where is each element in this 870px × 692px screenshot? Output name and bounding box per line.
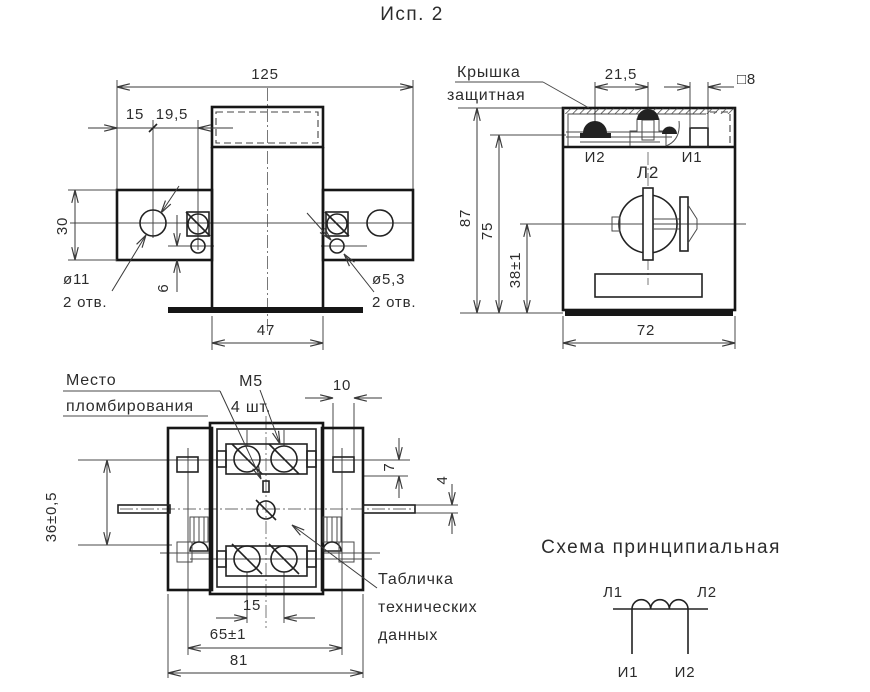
dim-38: 38±1 [507, 252, 524, 288]
dim-75: 75 [479, 222, 496, 240]
thread-label-line2: 4 шт. [231, 399, 271, 416]
dim-10: 10 [333, 377, 351, 394]
schematic: Схема принципиальная Л1 Л2 И1 И2 [541, 537, 781, 681]
dim-30: 30 [54, 217, 71, 235]
seal-label-line1: Место [66, 372, 116, 389]
terminal-screw-icon [269, 444, 299, 474]
square-terminal-opening [690, 128, 708, 147]
thread-label-line1: М5 [239, 373, 263, 390]
terminal-label-i1: И1 [682, 149, 703, 166]
plate-label-line3: данных [378, 627, 438, 644]
side-view: Крышка защитная 21,5 □8 87 75 38±1 72 И2… [447, 64, 756, 349]
terminal-label-l2: Л2 [637, 163, 659, 182]
clamp-bar [643, 188, 653, 260]
front-base-plate [168, 307, 363, 313]
bottom-central-block [210, 423, 323, 594]
dim-dia11: ø11 [63, 271, 90, 288]
side-label-plate [595, 274, 702, 297]
terminal-label-i2: И2 [585, 149, 606, 166]
plate-label-line2: технических [378, 599, 477, 616]
terminal-screw-head-icon [583, 121, 607, 133]
cover-label-line1: Крышка [457, 64, 521, 81]
dim-125: 125 [251, 66, 278, 83]
dim-65: 65±1 [210, 626, 246, 643]
dim-21-5: 21,5 [605, 66, 637, 83]
dim-87: 87 [457, 209, 474, 227]
seal-label-line2: пломбирования [66, 398, 194, 415]
dim-4: 4 [434, 475, 451, 484]
schematic-label-l2: Л2 [697, 584, 717, 601]
schematic-label-i2: И2 [675, 664, 696, 681]
cover-label-line2: защитная [447, 87, 525, 104]
schematic-title: Схема принципиальная [541, 537, 781, 558]
latch-right [323, 517, 354, 562]
side-base-plate [565, 311, 733, 316]
dim-square8: □8 [737, 71, 756, 88]
bottom-view: Место пломбирования М5 4 шт. 10 7 4 36±0… [43, 372, 477, 678]
technical-drawing: Исп. 2 [0, 0, 870, 692]
secondary-winding-icon [632, 600, 688, 609]
mounting-tab-right [333, 457, 354, 472]
dim-81: 81 [230, 652, 248, 669]
dim-7: 7 [381, 462, 398, 471]
plate-label-line1: Табличка [378, 571, 454, 588]
drawing-sheet: Исп. 2 [0, 0, 870, 692]
dim-36: 36±0,5 [43, 492, 60, 543]
dim-15: 15 [126, 106, 144, 123]
dim-dia11-qty: 2 отв. [63, 294, 107, 311]
small-screw-head-icon [662, 127, 677, 135]
dim-15-bottom: 15 [243, 597, 261, 614]
front-view: 125 15 19,5 30 6 ø11 2 отв. ø5,3 2 отв. … [54, 66, 416, 350]
dim-6: 6 [155, 283, 172, 292]
schematic-label-i1: И1 [618, 664, 639, 681]
dim-dia5-3-qty: 2 отв. [372, 294, 416, 311]
dim-47: 47 [257, 322, 275, 339]
dim-dia5-3: ø5,3 [372, 271, 405, 288]
front-right-flange [323, 190, 413, 260]
schematic-label-l1: Л1 [603, 584, 623, 601]
sheet-title: Исп. 2 [380, 4, 444, 25]
dim-72: 72 [637, 322, 655, 339]
terminal-screw-icon [325, 212, 349, 236]
latch-left [177, 517, 208, 562]
dim-19-5: 19,5 [156, 106, 188, 123]
